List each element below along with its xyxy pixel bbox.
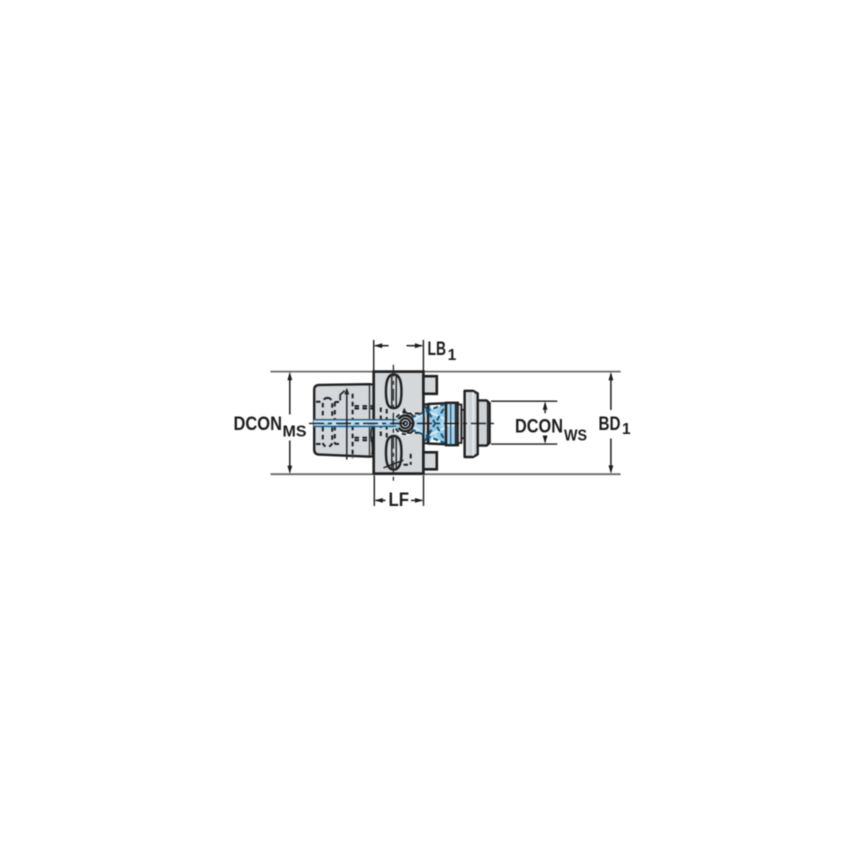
svg-text:LB: LB xyxy=(428,339,447,360)
svg-text:1: 1 xyxy=(622,421,631,438)
svg-text:DCON: DCON xyxy=(234,414,283,435)
svg-text:BD: BD xyxy=(599,414,621,435)
svg-text:MS: MS xyxy=(283,424,307,441)
svg-text:WS: WS xyxy=(564,428,587,445)
svg-text:LF: LF xyxy=(389,490,410,511)
svg-text:DCON: DCON xyxy=(515,417,563,438)
svg-text:1: 1 xyxy=(448,347,457,364)
